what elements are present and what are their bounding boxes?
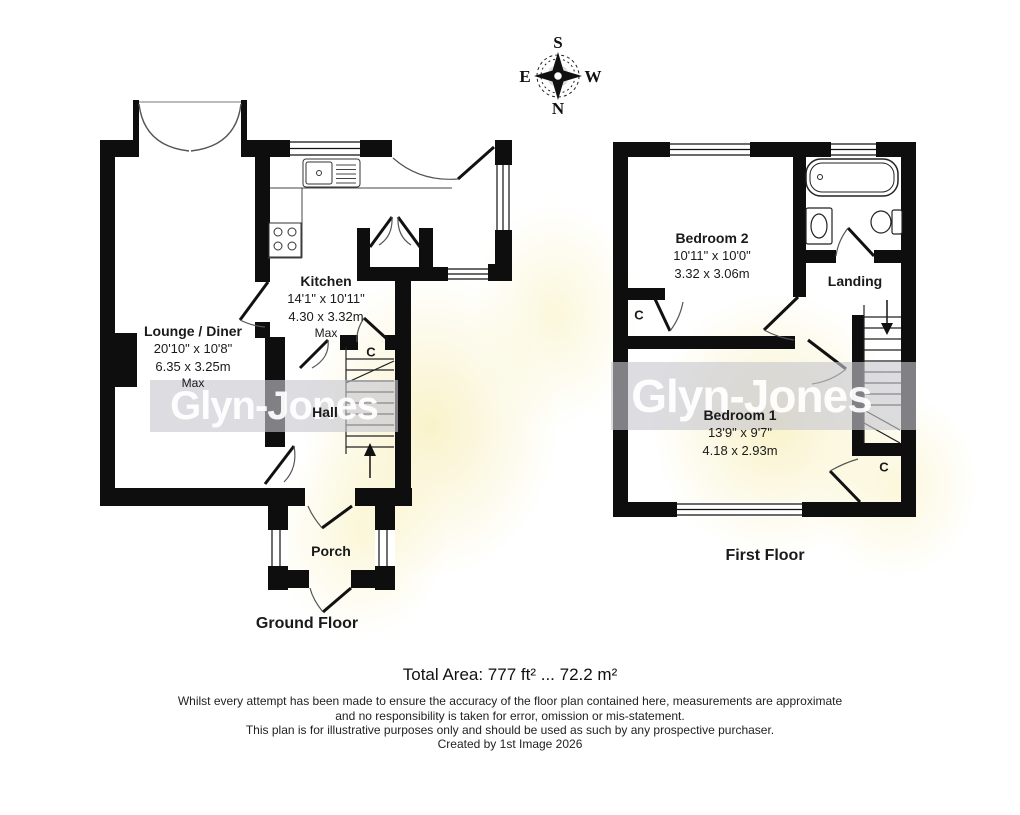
toilet [871,210,902,234]
compass-top-label: S [553,33,562,52]
room-name: Bedroom 1 [702,406,777,424]
bedroom2-label: Bedroom 2 10'11" x 10'0" 3.32 x 3.06m [673,229,751,283]
credit-line: Created by 1st Image 2026 [0,737,1020,751]
cupboard-label: C [634,308,643,323]
cupboard-label: C [879,460,888,475]
room-name: Bedroom 2 [673,229,751,247]
bathroom-fixtures [806,159,902,244]
floorplan-page: S N E W Glyn-Jones Glyn-Jones Lounge / D… [0,0,1020,815]
compass-right-label: W [585,67,602,86]
stairs-down-arrow [881,323,893,335]
sink-unit [303,159,360,187]
first-floor-windows [670,142,876,517]
room-dims-imperial: 13'9" x 9'7" [702,424,777,442]
stairs-up-arrow [364,443,376,456]
basin [806,208,832,244]
porch-label: Porch [311,543,351,559]
lounge-label: Lounge / Diner 20'10" x 10'8" 6.35 x 3.2… [144,322,242,391]
landing-label: Landing [828,273,882,289]
room-dims-metric: 3.32 x 3.06m [673,265,751,283]
hob [269,223,301,257]
compass-left-label: E [519,67,530,86]
ground-floor-title: Ground Floor [256,615,358,633]
first-floor-title: First Floor [725,547,804,565]
room-name: Kitchen [287,272,365,290]
room-dims-metric: 4.18 x 2.93m [702,442,777,460]
compass-rose: S N E W [519,33,601,118]
room-dims-metric: 4.30 x 3.32m [287,308,365,326]
disclaimer-line-1: Whilst every attempt has been made to en… [0,694,1020,708]
hall-label: Hall [312,404,338,420]
bedroom1-label: Bedroom 1 13'9" x 9'7" 4.18 x 2.93m [702,406,777,460]
room-dims-imperial: 14'1" x 10'11" [287,290,365,308]
cupboard-label: C [366,345,375,360]
room-qualifier: Max [144,376,242,391]
room-dims-metric: 6.35 x 3.25m [144,358,242,376]
total-area: Total Area: 777 ft² ... 72.2 m² [0,665,1020,685]
disclaimer-line-2: and no responsibility is taken for error… [0,709,1020,723]
disclaimer-line-3: This plan is for illustrative purposes o… [0,723,1020,737]
room-dims-imperial: 20'10" x 10'8" [144,340,242,358]
room-name: Lounge / Diner [144,322,242,340]
room-qualifier: Max [287,326,365,341]
compass-bottom-label: N [552,99,565,118]
room-dims-imperial: 10'11" x 10'0" [673,247,751,265]
kitchen-label: Kitchen 14'1" x 10'11" 4.30 x 3.32m Max [287,272,365,341]
